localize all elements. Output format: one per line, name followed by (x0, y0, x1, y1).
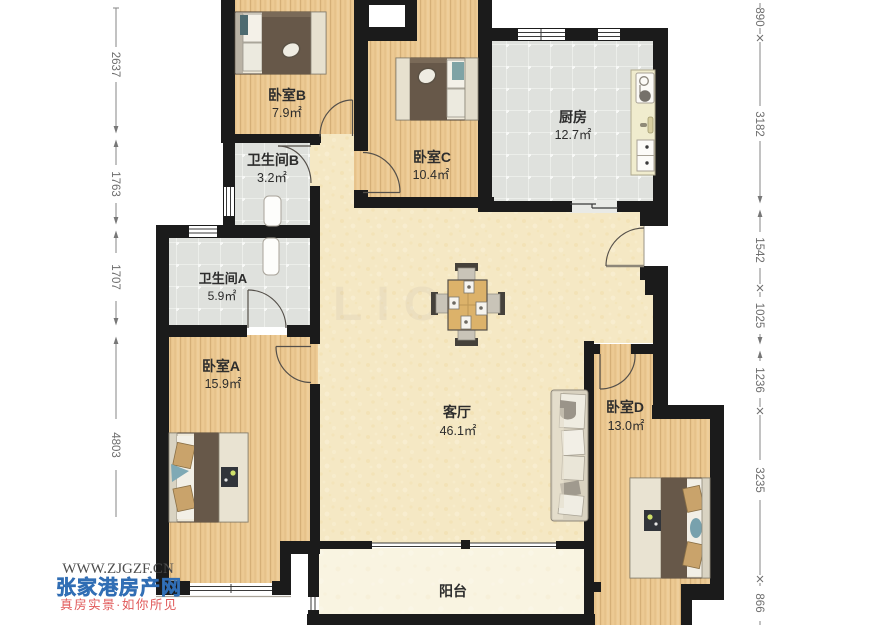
svg-text:卧室C: 卧室C (413, 149, 451, 165)
svg-text:真房实景·如你所见: 真房实景·如你所见 (60, 597, 178, 612)
svg-text:1763: 1763 (109, 171, 121, 197)
svg-text:卧室D: 卧室D (606, 399, 644, 415)
svg-text:阳台: 阳台 (439, 583, 467, 599)
svg-text:卫生间B: 卫生间B (247, 152, 299, 168)
svg-text:1707: 1707 (109, 264, 121, 290)
svg-text:3182: 3182 (753, 111, 765, 137)
svg-text:1542: 1542 (753, 237, 765, 263)
svg-text:2637: 2637 (109, 52, 121, 78)
svg-text:1025: 1025 (753, 303, 765, 329)
svg-text:客厅: 客厅 (442, 404, 471, 420)
svg-text:卫生间A: 卫生间A (199, 271, 248, 286)
svg-text:卧室B: 卧室B (268, 87, 306, 103)
svg-text:4803: 4803 (109, 432, 121, 458)
svg-text:12.7㎡: 12.7㎡ (555, 128, 592, 142)
svg-text:866: 866 (753, 593, 765, 612)
svg-text:15.9㎡: 15.9㎡ (205, 377, 242, 391)
svg-text:厨房: 厨房 (559, 109, 587, 125)
svg-text:张家港房产网: 张家港房产网 (56, 575, 182, 599)
svg-text:10.4㎡: 10.4㎡ (413, 168, 450, 182)
svg-text:5.9㎡: 5.9㎡ (208, 289, 237, 303)
svg-text:WWW.ZJGZF.CN: WWW.ZJGZF.CN (62, 561, 174, 577)
svg-text:46.1㎡: 46.1㎡ (440, 424, 477, 438)
svg-text:1236: 1236 (753, 367, 765, 393)
svg-text:890: 890 (753, 7, 765, 26)
svg-text:卧室A: 卧室A (202, 358, 240, 374)
svg-text:3.2㎡: 3.2㎡ (257, 171, 287, 185)
svg-text:3235: 3235 (753, 467, 765, 493)
svg-text:7.9㎡: 7.9㎡ (272, 106, 302, 120)
svg-text:13.0㎡: 13.0㎡ (608, 419, 645, 433)
